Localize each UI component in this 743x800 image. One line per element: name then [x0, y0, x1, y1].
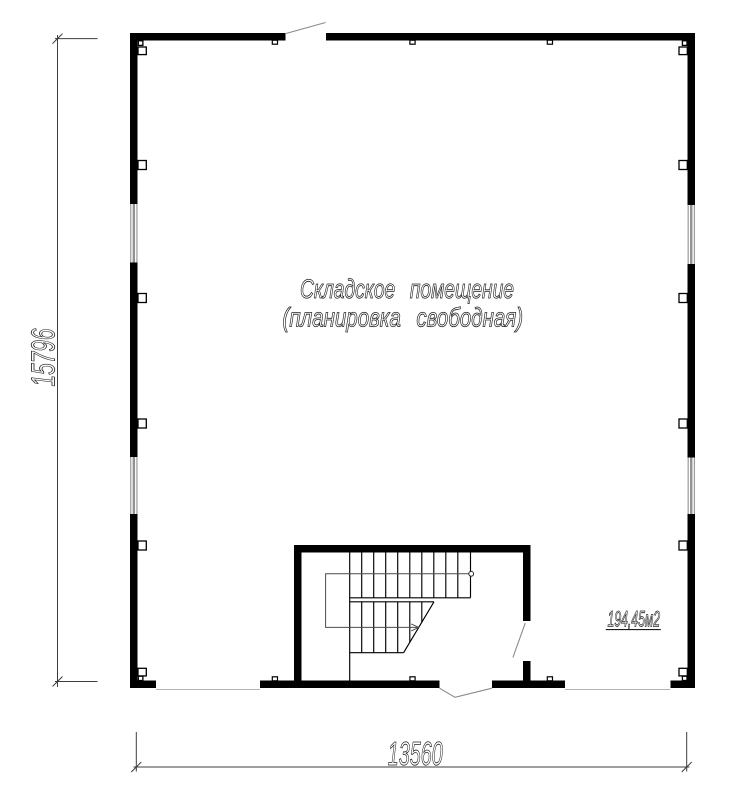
svg-text:(планировка свободная): (планировка свободная) — [283, 303, 524, 333]
svg-text:194,45м2: 194,45м2 — [608, 607, 661, 632]
svg-text:13560: 13560 — [388, 735, 443, 772]
svg-text:Складское помещение: Складское помещение — [300, 274, 514, 304]
svg-text:15796: 15796 — [24, 328, 61, 386]
